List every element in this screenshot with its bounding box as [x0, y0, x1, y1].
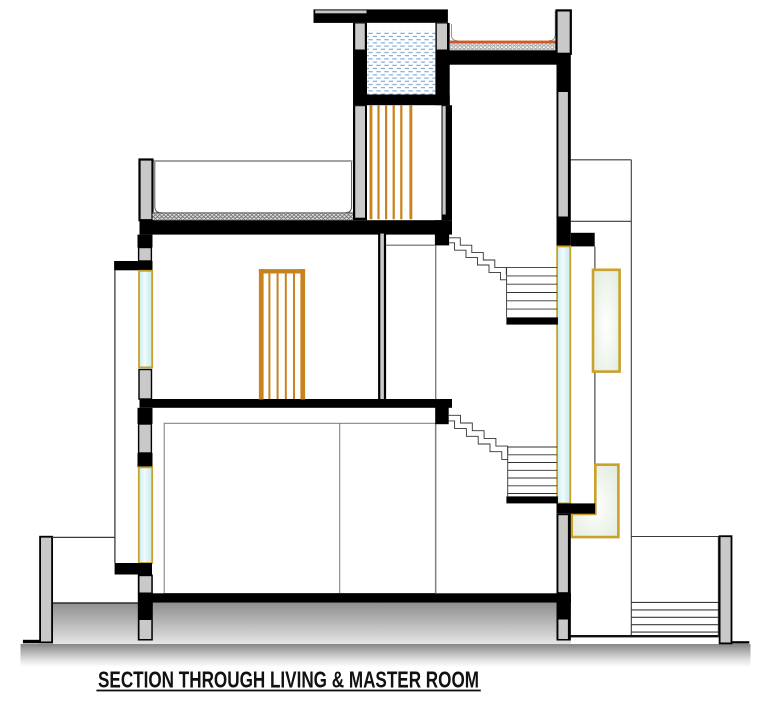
svg-text:SECTION THROUGH LIVING & MASTE: SECTION THROUGH LIVING & MASTER ROOM — [98, 667, 479, 693]
